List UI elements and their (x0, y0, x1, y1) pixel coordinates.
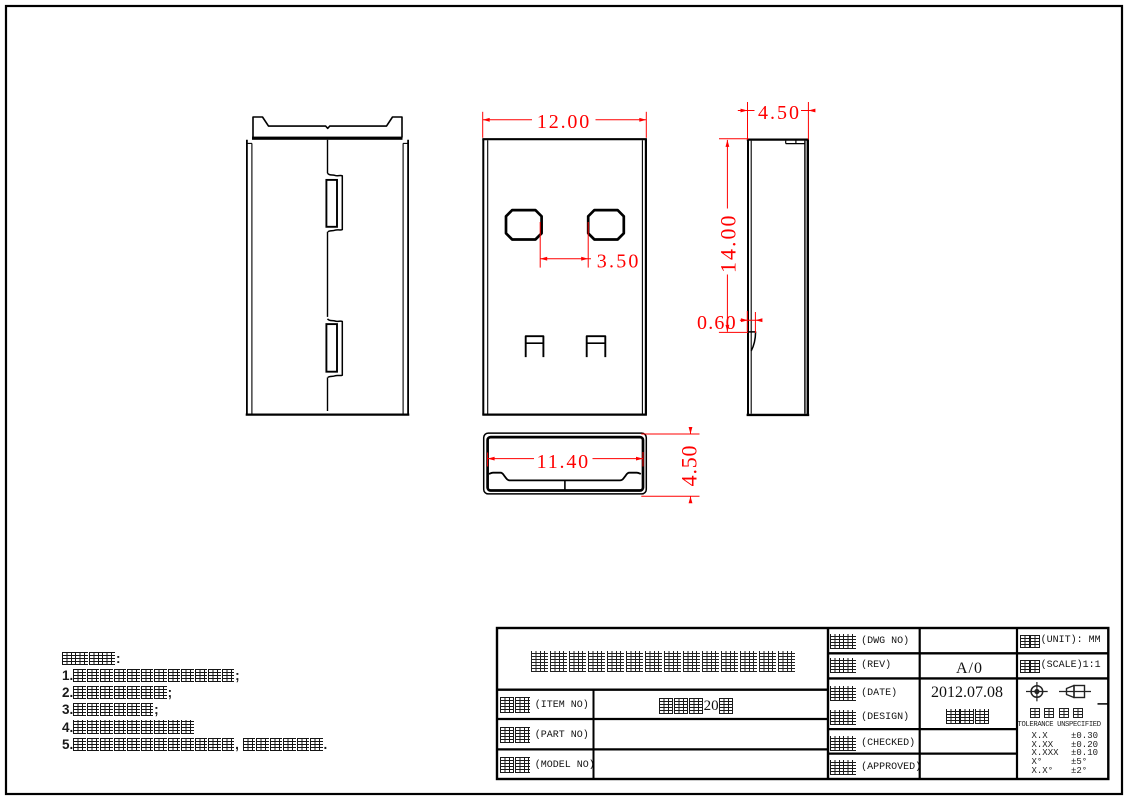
svg-text:12.00: 12.00 (537, 111, 591, 133)
svg-text:11.40: 11.40 (537, 451, 590, 473)
svg-text:14.00: 14.00 (716, 213, 741, 273)
svg-text:4.50: 4.50 (677, 445, 702, 487)
svg-text:4.50: 4.50 (758, 102, 801, 124)
svg-text:0.60: 0.60 (697, 312, 737, 334)
svg-text:3.50: 3.50 (597, 250, 641, 272)
